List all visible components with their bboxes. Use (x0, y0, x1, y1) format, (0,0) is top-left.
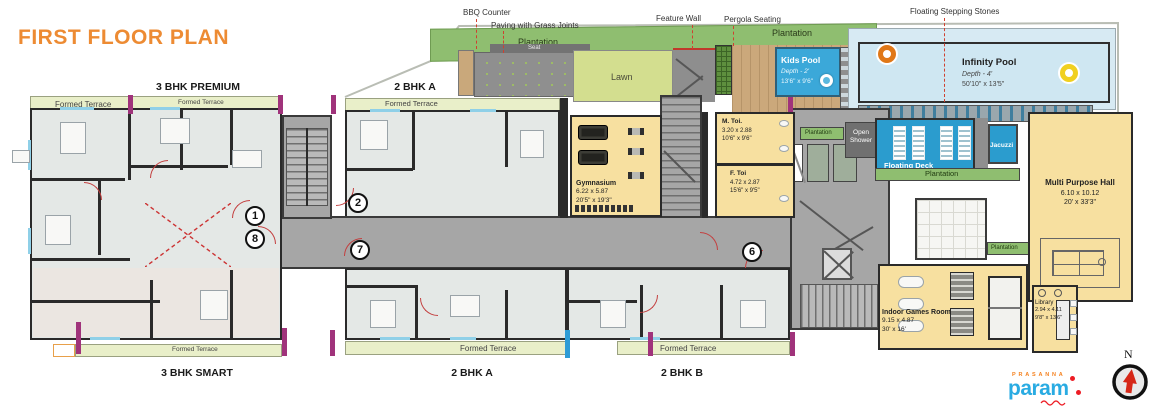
formed-terrace-top-mid: Formed Terrace (385, 100, 438, 109)
gym-equipment-icon (628, 148, 644, 155)
games-dim-m: 9.15 x 4.87 (882, 317, 951, 326)
plantation-label-5: Plantation (991, 245, 1018, 252)
seat-label: Seat (528, 45, 540, 52)
games-name: Indoor Games Room (882, 308, 951, 317)
infinity-pool-name: Infinity Pool (962, 58, 1016, 69)
wall-accent (278, 95, 283, 114)
unit-label-3bhk-smart: 3 BHK SMART (117, 367, 277, 379)
swim-ring-white-icon (820, 74, 833, 87)
plantation-label-3: Plantation (805, 130, 832, 137)
unit-label-2bhk-a-bottom: 2 BHK A (432, 367, 512, 379)
jacuzzi-label: Jacuzzi (990, 142, 1013, 149)
unit-marker-1: 1 (245, 206, 265, 226)
unit-label-2bhk-b-bottom: 2 BHK B (642, 367, 722, 379)
unit-marker-7: 7 (350, 240, 370, 260)
gym-equipment-icon (628, 172, 644, 179)
callout-paving: Paving with Grass Joints (491, 21, 579, 30)
library-chair (1070, 314, 1077, 321)
unit-label-2bhk-a-top: 2 BHK A (375, 81, 455, 93)
bed (360, 120, 388, 150)
formed-terrace-top-left2: Formed Terrace (178, 99, 224, 106)
callout-bbq-counter: BBQ Counter (463, 8, 511, 17)
plantation-label-4: Plantation (925, 170, 958, 179)
wall (30, 300, 160, 303)
library-dim-ft: 9'8" x 13'6" (1035, 315, 1062, 322)
mph-name: Multi Purpose Hall (1030, 178, 1130, 189)
stair-rail (306, 128, 308, 206)
brand-dot-icon (1070, 376, 1075, 381)
deck-gap (975, 118, 988, 174)
balcony-ledge (12, 150, 30, 163)
wall (30, 258, 130, 261)
mtoi-name: M. Toi. (722, 118, 752, 127)
wall (230, 270, 233, 338)
library-dim-m: 2.94 x 4.11 (1035, 307, 1062, 314)
wall-accent-blue (565, 330, 570, 358)
mph-chair (1098, 258, 1106, 266)
unit-marker-8: 8 (245, 229, 265, 249)
games-dim-ft: 30' x 16' (882, 326, 951, 335)
terrace-strip-bottom-mid (345, 341, 567, 355)
wall (30, 178, 125, 181)
formed-terrace-bottom-left: Formed Terrace (172, 346, 218, 353)
leader-line (733, 26, 734, 46)
bed (370, 300, 396, 328)
wc-fixture (779, 145, 789, 152)
library-chair (1070, 300, 1077, 307)
wall (345, 168, 413, 171)
wall (560, 98, 568, 218)
window (450, 337, 476, 340)
window (370, 109, 400, 112)
bed (600, 300, 626, 328)
kids-pool-name: Kids Pool (781, 56, 820, 66)
wall (150, 280, 153, 338)
lift-1 (807, 144, 829, 182)
lounger-icon (912, 126, 925, 160)
lounger-icon (958, 126, 971, 160)
void-cutout-x (145, 203, 231, 267)
wall-accent (282, 328, 287, 356)
swim-ring-yellow-icon (1060, 64, 1078, 82)
lounger-icon (940, 126, 953, 160)
gym-dim-m: 6.22 x 5.87 (576, 188, 616, 197)
foosball-table (950, 308, 974, 336)
wall (720, 285, 723, 340)
mph-dim-m: 6.10 x 10.12 (1030, 189, 1130, 198)
open-shower-label: Open Shower (845, 129, 877, 146)
kids-pool-depth: Depth - 2' (781, 68, 809, 75)
mph-dim-ft: 20' x 33'3" (1030, 198, 1130, 207)
wall-accent (331, 95, 336, 114)
mtoi-dim-ft: 10'6" x 9'6" (722, 135, 752, 143)
treadmill-icon (578, 150, 608, 165)
leader-line (692, 25, 693, 49)
gym-equipment-icon (628, 128, 644, 135)
ftoi-dim-ft: 15'6" x 9'5" (730, 187, 760, 195)
bed (60, 122, 86, 154)
mtoi-dim-m: 3.20 x 2.88 (722, 127, 752, 135)
unit-label-3bhk-premium: 3 BHK PREMIUM (118, 81, 278, 93)
brand-name: param (1008, 377, 1069, 401)
bed (200, 290, 228, 320)
treadmill-icon (578, 125, 608, 140)
terrace-box-outline (53, 344, 75, 357)
foosball-table (950, 272, 974, 300)
callout-feature-wall: Feature Wall (656, 14, 701, 23)
callout-stepping-stones: Floating Stepping Stones (910, 7, 999, 16)
wall-accent (330, 330, 335, 356)
swim-ring-orange-icon (878, 45, 896, 63)
wall (715, 163, 795, 166)
games-table (898, 276, 924, 288)
deck-grid-room (915, 198, 987, 260)
wall-accent (76, 322, 81, 354)
brand-dot-icon (1076, 390, 1081, 395)
window (28, 228, 31, 254)
wall (128, 165, 228, 168)
core-mid (660, 95, 702, 218)
window (90, 337, 120, 340)
infinity-pool-depth: Depth - 4' (962, 71, 992, 79)
floor-plan-canvas: FIRST FLOOR PLAN Plantation Plantation S… (0, 0, 1154, 420)
bed (740, 300, 766, 328)
brand-tagline-script (1040, 399, 1070, 406)
wall-accent (790, 332, 795, 356)
wall (345, 285, 415, 288)
window (60, 107, 94, 110)
gym-dim-ft: 20'5" x 19'3" (576, 197, 616, 206)
window (380, 337, 410, 340)
pergola-seating-area (715, 45, 732, 95)
bbq-counter-area (458, 50, 474, 96)
bed (520, 130, 544, 158)
leader-line (503, 31, 504, 53)
callout-pergola: Pergola Seating (724, 15, 781, 24)
ftoi-dim-m: 4.72 x 2.87 (730, 179, 760, 187)
library-name: Library (1035, 299, 1062, 307)
ftoi-name: F. Toi (730, 170, 760, 179)
wall-accent (648, 332, 653, 356)
sofa (232, 150, 262, 168)
wall (505, 112, 508, 167)
wall (128, 110, 131, 180)
north-label: N (1124, 348, 1133, 362)
bed (45, 215, 71, 245)
window (470, 109, 496, 112)
window (150, 107, 180, 110)
leader-line (476, 19, 477, 49)
unit-marker-6: 6 (742, 242, 762, 262)
kids-pool-size: 13'6" x 9'6" (781, 78, 813, 85)
infinity-pool-size: 50'10" x 13'5" (962, 81, 1004, 89)
unit-marker-2: 2 (348, 193, 368, 213)
wall-accent (128, 95, 133, 114)
formed-terrace-bottom-right: Formed Terrace (660, 344, 716, 353)
lounger-icon (893, 126, 906, 160)
dining-table (450, 295, 480, 317)
gym-name: Gymnasium (576, 179, 616, 188)
wc-fixture (779, 195, 789, 202)
wall (412, 112, 415, 170)
mph-table (1052, 250, 1104, 276)
wall (415, 285, 418, 340)
leader-line (944, 18, 945, 102)
library-chair (1038, 289, 1046, 297)
window (630, 337, 660, 340)
formed-terrace-bottom-mid: Formed Terrace (460, 344, 516, 353)
wc-fixture (779, 120, 789, 127)
wall (505, 290, 508, 340)
library-chair (1070, 328, 1077, 335)
plantation-label-2: Plantation (772, 28, 812, 38)
gym-lockers (575, 205, 633, 212)
wall (702, 112, 708, 218)
north-arrow-icon (1110, 362, 1150, 402)
stair-right (800, 284, 878, 328)
bed (160, 118, 190, 144)
billiards-midline (988, 307, 1022, 309)
lawn-label: Lawn (611, 72, 633, 82)
library-chair (1054, 289, 1062, 297)
